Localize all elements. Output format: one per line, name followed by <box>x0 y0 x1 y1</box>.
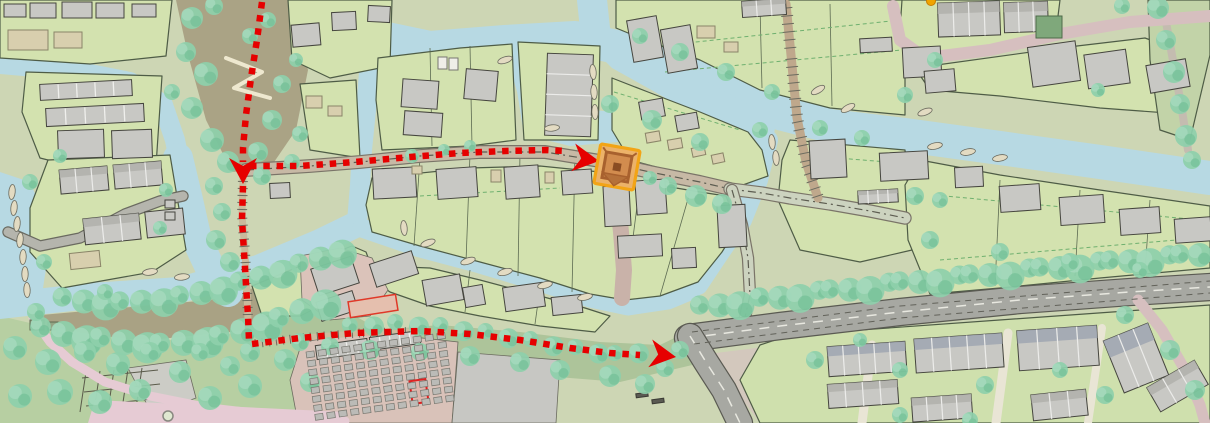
market-stall <box>319 358 328 365</box>
tree <box>289 254 308 273</box>
market-stall <box>397 393 406 400</box>
tree-shade <box>1148 260 1162 274</box>
tree <box>890 271 909 290</box>
tree-shade <box>1156 6 1167 17</box>
building-footprint <box>1119 207 1161 236</box>
tree <box>53 287 72 306</box>
tree <box>238 374 262 398</box>
market-stall <box>404 355 413 362</box>
building <box>96 3 124 18</box>
market-stall <box>370 378 379 385</box>
tree <box>129 379 151 401</box>
market-stall <box>390 348 399 355</box>
tree <box>599 365 621 387</box>
tree-shade <box>828 287 838 297</box>
building-footprint <box>462 284 485 307</box>
market-stall <box>422 398 431 405</box>
tree-shade <box>1172 70 1183 81</box>
building-footprint <box>645 131 661 143</box>
building-footprint <box>671 247 696 268</box>
tree <box>1052 362 1068 378</box>
building <box>132 4 156 17</box>
tree-shade <box>819 126 827 134</box>
tree-shade <box>929 238 938 247</box>
market-stall <box>334 374 343 381</box>
tree-shade <box>277 315 287 325</box>
building <box>62 2 92 18</box>
building <box>372 167 417 199</box>
roof-stripe <box>65 109 66 125</box>
tree <box>550 360 570 380</box>
tree <box>47 379 73 405</box>
boat <box>20 249 27 264</box>
tree-shade <box>229 260 239 270</box>
market-stall <box>369 369 378 376</box>
roof-stripe <box>104 106 105 122</box>
tree <box>200 128 224 152</box>
tree <box>1160 340 1180 360</box>
market-stall <box>386 403 395 410</box>
tree-shade <box>281 82 290 91</box>
tree-shade <box>218 333 228 343</box>
building <box>69 250 101 269</box>
building <box>645 131 661 143</box>
market-stall <box>381 368 390 375</box>
building-footprint <box>132 4 156 17</box>
building-footprint <box>332 11 357 30</box>
market-stall <box>327 412 336 419</box>
tree-shade <box>1179 102 1189 112</box>
tree-shade <box>443 149 449 155</box>
tree-shade <box>699 140 708 149</box>
building <box>671 247 696 268</box>
tree-shade <box>939 198 947 206</box>
tree <box>153 221 167 235</box>
tree <box>991 243 1009 261</box>
tree-shade <box>1178 252 1188 262</box>
tree-shade <box>559 368 569 378</box>
market-stall <box>405 364 414 371</box>
market-stall <box>344 364 353 371</box>
tree <box>853 333 867 347</box>
market-stall <box>336 392 345 399</box>
boardwalk-canal-b-tick <box>241 262 251 263</box>
building-footprint <box>4 4 26 17</box>
tree-shade <box>759 128 767 136</box>
building-footprint <box>999 184 1041 213</box>
market-stall <box>332 365 341 372</box>
tree-shade <box>394 320 402 328</box>
tree <box>289 53 303 67</box>
tree-shade <box>814 358 823 367</box>
building-footprint <box>1059 194 1105 225</box>
building-footprint <box>504 165 540 199</box>
tree-shade <box>694 194 705 205</box>
tree <box>53 149 67 163</box>
tree-shade <box>861 136 869 144</box>
tree <box>97 284 113 300</box>
building-footprint <box>561 169 593 195</box>
building-footprint <box>667 138 683 150</box>
tree-shade <box>868 288 882 302</box>
tree-shade <box>698 303 708 313</box>
canal-north-stub <box>592 0 596 38</box>
market-stall <box>323 385 332 392</box>
building-footprint <box>412 166 422 174</box>
tree <box>460 346 480 366</box>
tree-shade <box>39 325 49 335</box>
tree <box>820 279 839 298</box>
tree-shade <box>283 358 294 369</box>
tree <box>854 130 870 146</box>
building <box>809 139 847 179</box>
building <box>291 23 321 47</box>
tree-shade <box>271 118 281 128</box>
building <box>937 1 1000 37</box>
market-stall <box>420 389 429 396</box>
tree-shade <box>248 384 260 396</box>
building <box>449 58 458 70</box>
market-stall <box>356 362 365 369</box>
tree <box>88 390 112 414</box>
tree-shade <box>299 132 307 140</box>
tree <box>1132 262 1148 278</box>
tree-shade <box>984 383 993 392</box>
tree-shade <box>99 335 109 345</box>
roof-stripe <box>113 82 114 96</box>
market-stall <box>432 388 441 395</box>
tree <box>976 376 994 394</box>
market-stall <box>409 391 418 398</box>
market-stall <box>393 366 402 373</box>
building-footprint <box>438 57 447 69</box>
tree-shade <box>299 340 308 349</box>
market-stall <box>430 370 439 377</box>
tree-shade <box>679 348 688 357</box>
tree <box>960 264 979 283</box>
tree-shade <box>116 362 128 374</box>
building-footprint <box>603 185 631 226</box>
tree <box>181 7 203 29</box>
market-stall <box>438 341 447 348</box>
building-footprint <box>879 151 928 181</box>
tree <box>181 97 203 119</box>
tree <box>248 142 268 162</box>
building-footprint <box>1027 41 1080 87</box>
building <box>999 184 1041 213</box>
tree-shade <box>35 310 44 319</box>
market-stall <box>367 351 376 358</box>
tree <box>159 183 173 197</box>
tree-shade <box>1169 348 1179 358</box>
building-footprint <box>697 26 715 38</box>
destination-marker[interactable] <box>594 144 640 190</box>
market-stall <box>425 334 434 341</box>
tree-shade <box>349 323 357 331</box>
tree-shade <box>295 59 302 66</box>
market-stall <box>314 404 323 411</box>
building <box>504 165 540 199</box>
building <box>879 151 928 181</box>
tree <box>812 120 828 136</box>
rowhouse-divider <box>888 189 889 202</box>
tree-shade <box>138 388 149 399</box>
tree-shade <box>104 290 112 298</box>
market-stall <box>392 357 401 364</box>
market-stall <box>322 376 331 383</box>
tree-shade <box>899 413 907 421</box>
tree-shade <box>199 350 208 359</box>
map-canvas[interactable] <box>0 0 1210 423</box>
tree-shade <box>664 366 673 375</box>
tree <box>194 62 218 86</box>
market-stall <box>315 413 324 420</box>
tree <box>752 122 768 138</box>
market-stall <box>384 385 393 392</box>
tree-shade <box>1078 266 1092 280</box>
tree-shade <box>608 374 619 385</box>
tree-shade <box>899 368 907 376</box>
tree <box>906 187 924 205</box>
market-stall <box>362 407 371 414</box>
building <box>617 234 662 258</box>
tree-shade <box>721 202 731 212</box>
building-footprint <box>464 69 498 102</box>
roof-stripe <box>58 84 59 98</box>
building <box>711 153 725 164</box>
building-footprint <box>711 153 725 164</box>
building <box>1059 194 1105 225</box>
building <box>165 212 175 220</box>
building <box>270 182 291 198</box>
tree-shade <box>29 180 37 188</box>
tree <box>274 349 296 371</box>
tree <box>198 386 222 410</box>
tree-shade <box>1198 253 1210 265</box>
building-footprint <box>372 167 417 199</box>
tree-shade <box>185 50 195 60</box>
market-stall <box>419 380 428 387</box>
tree <box>932 192 948 208</box>
market-stall <box>335 383 344 390</box>
roof-stripe <box>76 83 77 97</box>
tree <box>27 303 45 321</box>
tree <box>253 167 271 185</box>
tree <box>74 341 96 363</box>
building <box>741 0 786 18</box>
tree-shade <box>639 34 647 42</box>
tree <box>685 185 707 207</box>
tree-shade <box>1194 388 1204 398</box>
market-stall <box>359 380 368 387</box>
market-stall <box>360 389 369 396</box>
tree <box>750 287 769 306</box>
tree <box>387 314 403 330</box>
building-footprint <box>954 166 983 187</box>
tree <box>806 351 824 369</box>
tree-shade <box>149 350 159 360</box>
building <box>914 333 1004 373</box>
tree <box>328 240 357 269</box>
market-stall <box>365 343 374 350</box>
tree-shade <box>938 280 952 294</box>
tree <box>1183 151 1201 169</box>
tree-shade <box>758 295 768 305</box>
tree <box>1116 306 1134 324</box>
market-stall <box>325 403 334 410</box>
map-svg[interactable] <box>0 0 1210 423</box>
market-stall <box>443 377 452 384</box>
building <box>165 200 175 208</box>
tree <box>170 285 189 304</box>
tree <box>690 295 709 314</box>
tree <box>140 342 160 362</box>
market-stall <box>429 361 438 368</box>
tree <box>1170 244 1189 263</box>
tree-shade <box>1124 313 1133 322</box>
tree-shade <box>204 72 216 84</box>
building-footprint <box>291 23 321 47</box>
building <box>4 4 26 17</box>
tree <box>635 374 655 394</box>
building <box>59 166 109 194</box>
building <box>112 129 153 158</box>
tree-shade <box>738 303 752 317</box>
market-stall <box>331 356 340 363</box>
boat <box>22 267 28 282</box>
boat <box>592 104 599 119</box>
tree-shade <box>1008 273 1022 287</box>
market-stall <box>434 397 443 404</box>
market-stall <box>347 382 356 389</box>
tree <box>90 327 111 348</box>
tree-shade <box>13 346 25 358</box>
building <box>436 167 478 200</box>
market-stall <box>414 345 423 352</box>
tree <box>1163 61 1185 83</box>
market-stall <box>354 344 363 351</box>
tree-shade <box>1121 4 1129 12</box>
tree <box>310 289 341 320</box>
tree <box>22 174 38 190</box>
tree-shade <box>679 50 688 59</box>
tree-shade <box>934 58 942 66</box>
building <box>545 53 594 137</box>
building-footprint <box>809 139 847 179</box>
building <box>1119 207 1161 236</box>
tree-shade <box>221 210 230 219</box>
roof-stripe <box>95 83 96 97</box>
market-stall <box>444 386 453 393</box>
tree-shade <box>83 350 94 361</box>
building-footprint <box>724 42 738 52</box>
tree-shade <box>261 174 270 183</box>
building <box>561 169 593 195</box>
building-footprint <box>1036 16 1062 38</box>
building-footprint <box>30 3 56 18</box>
building <box>603 185 631 226</box>
market-stall <box>343 355 352 362</box>
tree-shade <box>1069 260 1078 269</box>
tree <box>205 177 223 195</box>
tree <box>106 352 130 376</box>
tree-shade <box>178 293 188 303</box>
building <box>332 11 357 30</box>
tree <box>764 84 780 100</box>
tree <box>1185 380 1205 400</box>
tree-shade <box>667 184 676 193</box>
tree <box>292 126 308 142</box>
market-stall <box>385 394 394 401</box>
market-stall <box>306 351 315 358</box>
market-stall <box>339 410 348 417</box>
rowhouse-divider <box>868 191 869 204</box>
building <box>1027 41 1080 87</box>
tree-shade <box>257 150 267 160</box>
tree <box>1096 386 1114 404</box>
boat <box>24 282 31 297</box>
market-stall <box>413 336 422 343</box>
building-footprint <box>270 182 291 198</box>
tree-shade <box>725 70 734 79</box>
building-footprint <box>62 2 92 18</box>
tree <box>164 84 180 100</box>
tree <box>36 254 52 270</box>
market-stall <box>311 387 320 394</box>
building-footprint <box>165 200 175 208</box>
tree-shade <box>968 272 978 282</box>
market-stall <box>415 354 424 361</box>
tree-shade <box>210 138 222 150</box>
tree <box>1061 253 1079 271</box>
tree-shade <box>249 350 259 360</box>
tree-shade <box>190 106 201 117</box>
tree <box>892 407 908 423</box>
market-stall <box>426 343 435 350</box>
tree-shade <box>61 295 71 305</box>
block-north-2 <box>300 80 360 158</box>
building <box>858 189 899 204</box>
market-stall <box>320 367 329 374</box>
tree <box>691 133 709 151</box>
building-footprint <box>112 129 153 158</box>
tree <box>671 43 689 61</box>
tree <box>209 325 230 346</box>
tree-shade <box>229 364 239 374</box>
building-footprint <box>449 58 458 70</box>
building <box>368 5 391 22</box>
tree <box>601 95 619 113</box>
tree <box>712 194 732 214</box>
tree <box>110 291 129 310</box>
tree <box>892 362 908 378</box>
tree <box>191 343 209 361</box>
building <box>438 57 447 69</box>
tree-shade <box>469 354 479 364</box>
roof-strip <box>1003 1 1047 12</box>
building <box>1036 16 1062 38</box>
building <box>403 111 443 138</box>
tree-shade <box>644 382 654 392</box>
building-footprint <box>491 170 501 182</box>
market-stall <box>377 341 386 348</box>
market-stall <box>312 395 321 402</box>
building-footprint <box>675 112 699 132</box>
tree <box>642 110 662 130</box>
tree <box>273 75 291 93</box>
market-stall <box>373 396 382 403</box>
tree-shade <box>771 90 779 98</box>
